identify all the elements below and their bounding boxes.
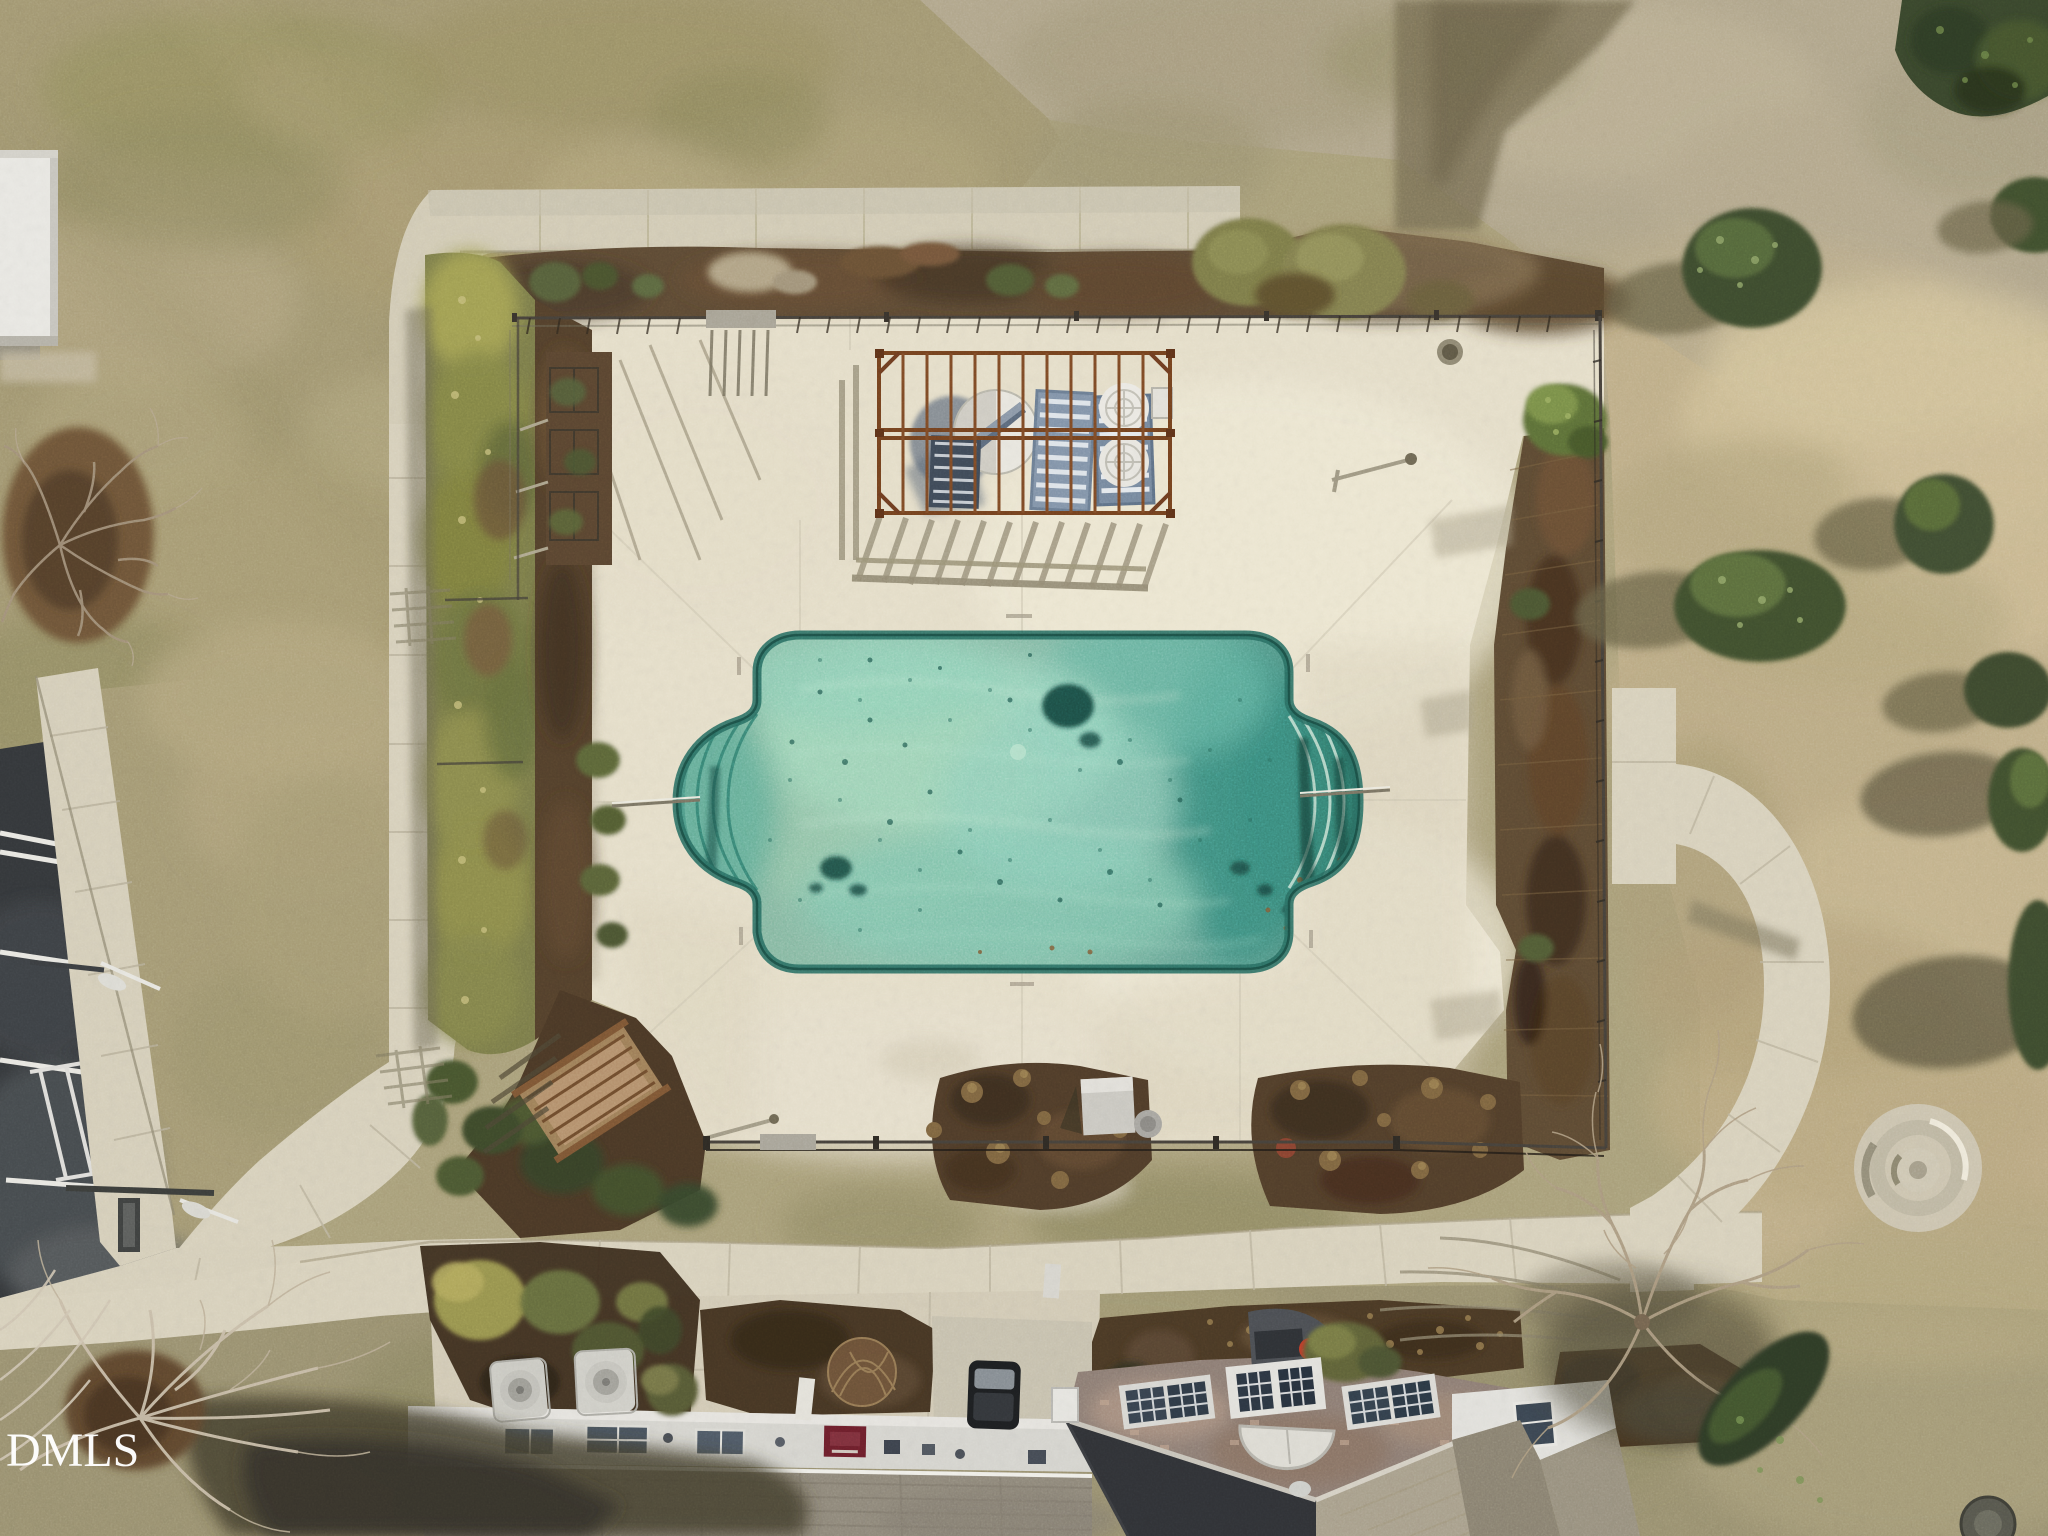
svg-text:DMLS: DMLS — [6, 1424, 139, 1477]
